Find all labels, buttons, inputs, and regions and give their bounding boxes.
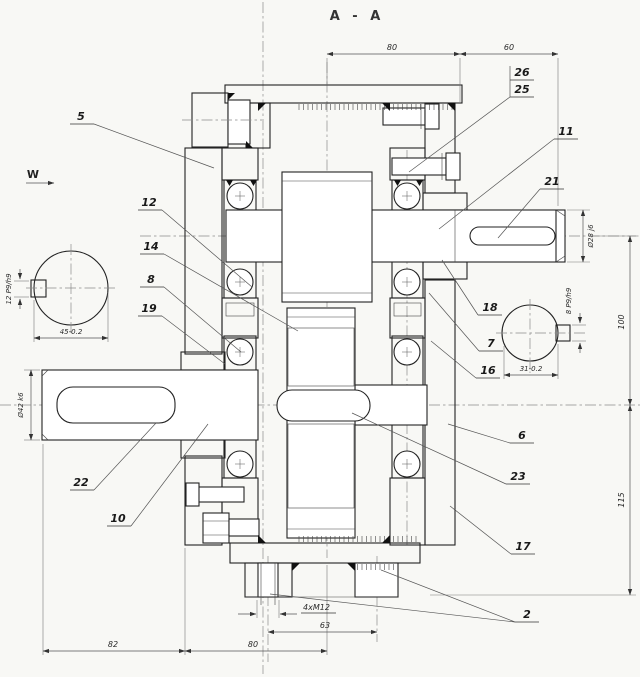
left-column-cap — [222, 148, 258, 180]
label-text: 10 — [110, 512, 126, 525]
label-text: 5 — [77, 110, 85, 123]
dim-b80-text: 80 — [248, 640, 258, 649]
label-text: 14 — [143, 240, 158, 253]
lower-gear-key — [277, 390, 370, 421]
left-bearing-cover-bottom — [181, 440, 225, 458]
bolt-shank — [392, 158, 446, 175]
lower-gear — [287, 308, 355, 538]
ticks-above-base — [296, 536, 418, 542]
label-text: 25 — [514, 83, 530, 96]
section-title: A - A — [330, 9, 385, 24]
bolt-head — [446, 153, 460, 180]
right-column-lower — [390, 478, 425, 545]
input-shaft-section-detail: 45-0.2 12 P9/h9 — [5, 244, 117, 342]
plug-neck — [228, 100, 250, 144]
left-seal — [226, 303, 254, 316]
ticks-right-foot — [357, 564, 397, 570]
dim-key8-text: 8 P9/h9 — [565, 287, 573, 314]
top-cover-plate — [225, 85, 462, 103]
dim-31-text: 31-0.2 — [520, 365, 543, 373]
drain-plug — [203, 513, 259, 543]
output-shaft-section-detail: 31-0.2 8 P9/h9 — [496, 287, 586, 379]
base-plate — [230, 543, 420, 563]
part-label-18: 18 — [442, 260, 502, 315]
plug-head — [203, 513, 229, 543]
ticks-under-top-plate — [298, 104, 456, 110]
oil-filler-plug — [182, 93, 262, 147]
view-direction: W — [26, 168, 54, 183]
cover-bolt-right — [392, 153, 460, 180]
cover-bolt-left — [186, 483, 244, 506]
label-text: 22 — [73, 476, 89, 489]
dim-key12-text: 12 P9/h9 — [5, 273, 13, 305]
label-text: 16 — [480, 364, 496, 377]
right-wall-lower — [425, 280, 455, 545]
right-column-spacer — [390, 298, 425, 338]
label-text: 12 — [141, 196, 157, 209]
dim-dia42-text: Ø42 k6 — [17, 392, 25, 419]
label-text: 6 — [518, 429, 526, 442]
right-bearing-cover-top — [423, 193, 467, 210]
left-column-spacer — [222, 298, 258, 338]
label-text: 2 — [523, 608, 531, 621]
part-label-26: 26 — [510, 66, 534, 80]
output-shaft — [226, 210, 565, 262]
dim-top-80-text: 80 — [387, 43, 397, 52]
part-label-17: 17 — [450, 506, 535, 554]
part-label-6: 6 — [448, 424, 534, 443]
label-text: 26 — [514, 66, 530, 79]
label-text: 17 — [515, 540, 531, 553]
label-text: 21 — [544, 175, 559, 188]
dim-top-60-text: 60 — [504, 43, 514, 52]
dim-45-text: 45-0.2 — [60, 328, 83, 336]
dim-82-text: 82 — [108, 640, 118, 649]
label-text: 19 — [141, 302, 157, 315]
upper-gear — [282, 172, 372, 302]
label-text: 7 — [487, 337, 495, 350]
bolt-shank — [383, 108, 425, 125]
engineering-drawing-page: A - A W 45-0.2 12 P9/h9 31-0.2 8 P9/h9 — [0, 0, 640, 677]
bolt-head — [186, 483, 199, 506]
part-label-2: 2 — [270, 570, 539, 622]
left-bearing-cover-top — [181, 352, 225, 370]
shafts-and-gears — [42, 172, 565, 538]
right-seal — [394, 303, 421, 316]
key-section — [31, 280, 46, 297]
dim-115-text: 115 — [617, 492, 626, 507]
view-arrow-label: W — [27, 168, 39, 181]
gearbox-section-drawing: A - A W 45-0.2 12 P9/h9 31-0.2 8 P9/h9 — [0, 0, 640, 677]
left-wall-upper — [185, 148, 222, 354]
bolt-shank — [198, 487, 244, 502]
label-text: 11 — [558, 125, 573, 138]
label-text: 8 — [147, 273, 155, 286]
label-text: 23 — [510, 470, 526, 483]
dim-m12-text: 4xM12 — [303, 603, 330, 612]
label-text: 18 — [482, 301, 498, 314]
plug-shank — [229, 519, 259, 536]
dim-100-text: 100 — [617, 314, 626, 329]
dim-63-text: 63 — [320, 621, 330, 630]
